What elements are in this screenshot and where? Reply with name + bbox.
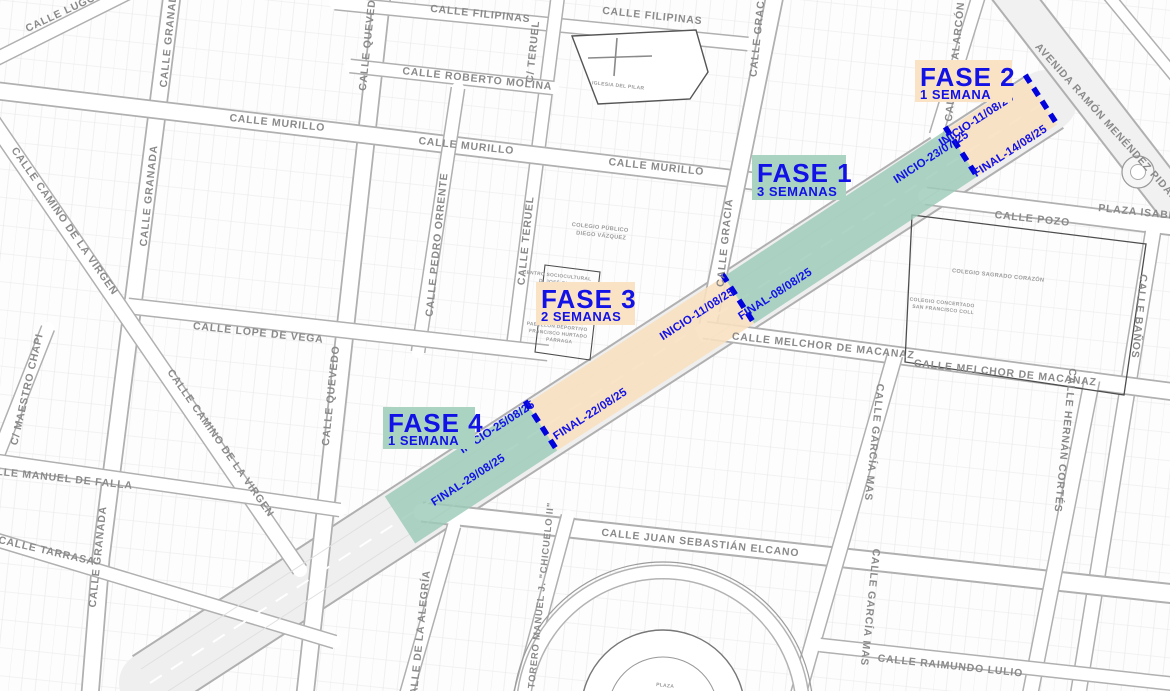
fase2-label-box[interactable]: FASE 2 1 SEMANA <box>915 60 1016 102</box>
fase2-duration: 1 SEMANA <box>920 87 991 102</box>
fase4-duration: 1 SEMANA <box>388 433 459 448</box>
fase4-label-box[interactable]: FASE 4 1 SEMANA <box>383 407 484 449</box>
roadworks-phasing-map: CALLE LUGO CALLE GRANADA CALLE GRANADA C… <box>0 0 1170 691</box>
map-canvas: CALLE LUGO CALLE GRANADA CALLE GRANADA C… <box>0 0 1170 691</box>
fase1-label-box[interactable]: FASE 1 3 SEMANAS <box>752 155 853 200</box>
fase3-label-box[interactable]: FASE 3 2 SEMANAS <box>536 282 637 325</box>
fase3-duration: 2 SEMANAS <box>541 309 621 324</box>
fase1-duration: 3 SEMANAS <box>757 184 837 199</box>
